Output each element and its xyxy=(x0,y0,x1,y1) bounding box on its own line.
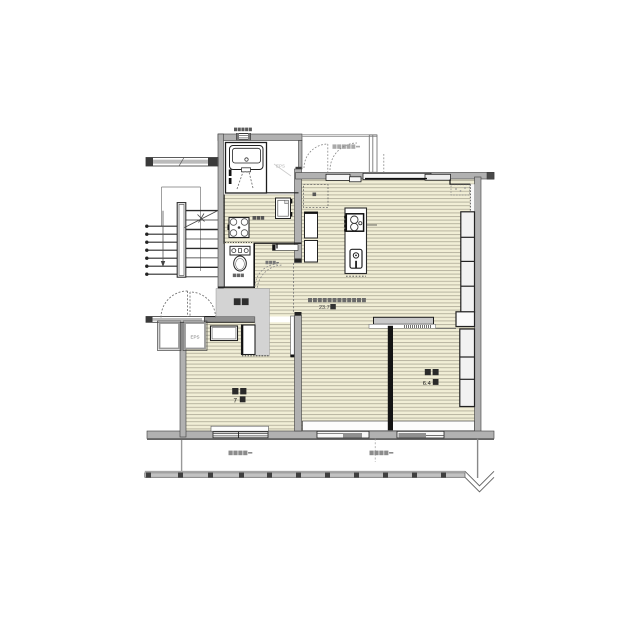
svg-text:EPS: EPS xyxy=(190,335,199,340)
svg-text:23.7: 23.7 xyxy=(319,305,330,311)
svg-text:6.4: 6.4 xyxy=(423,381,432,387)
svg-text:7: 7 xyxy=(234,397,238,404)
svg-text:EPS: EPS xyxy=(276,164,285,169)
